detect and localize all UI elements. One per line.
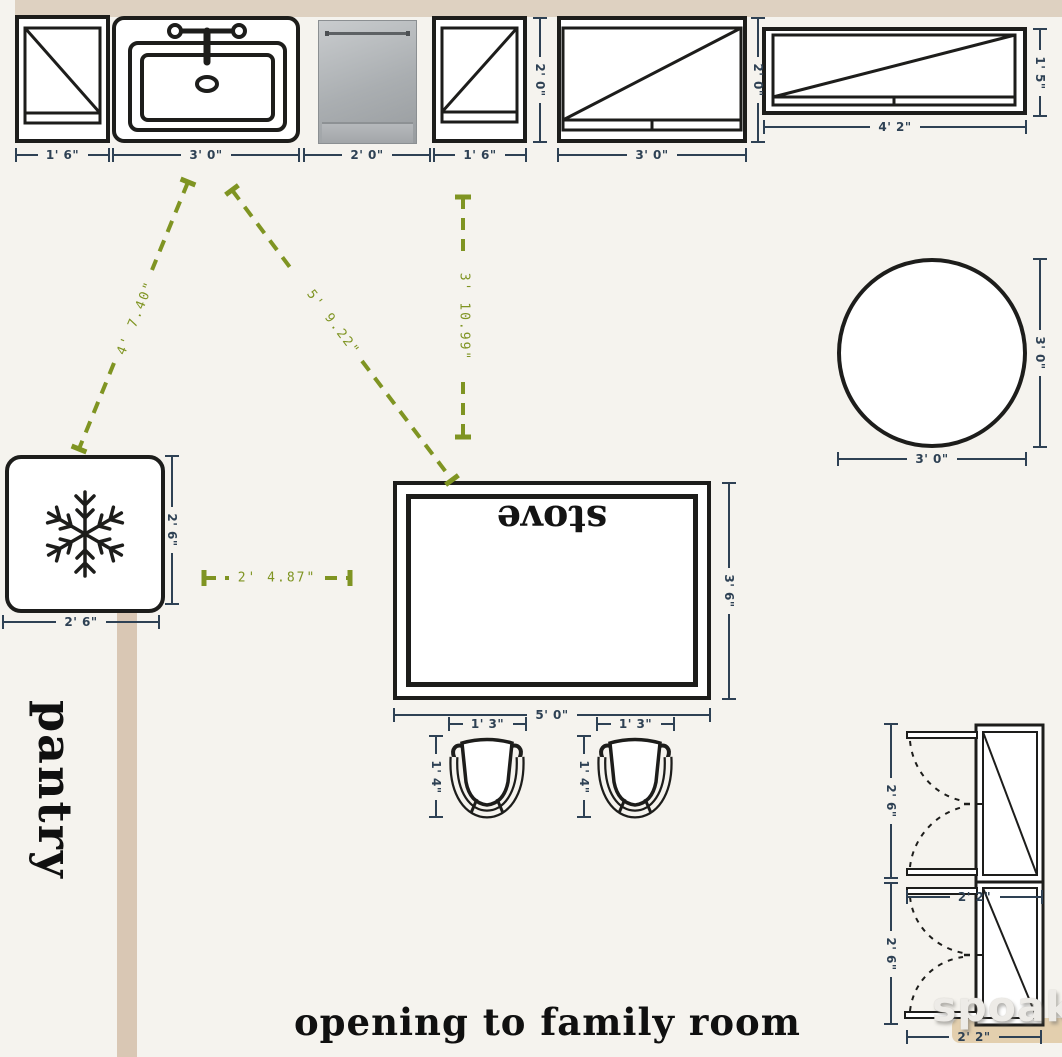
guide-label: 5' 9.22" bbox=[303, 287, 362, 359]
spoak-watermark: spoak. bbox=[932, 983, 1062, 1031]
snowflake-icon bbox=[36, 485, 134, 583]
stove-label: stove bbox=[397, 497, 707, 542]
guide-line-sink-to-stove bbox=[232, 190, 452, 480]
stool-right[interactable] bbox=[595, 733, 675, 821]
window-icon bbox=[762, 27, 1027, 115]
dim-label: 5' 0" bbox=[535, 709, 568, 721]
stool-left[interactable] bbox=[447, 733, 527, 821]
window-mid[interactable] bbox=[557, 16, 747, 143]
floorplan-canvas: stove bbox=[0, 0, 1062, 1057]
dim-cabinet-small-left-width: 1' 6" bbox=[15, 148, 110, 162]
cabinet-small-left[interactable] bbox=[15, 15, 110, 143]
dim-table-height: 3' 0" bbox=[1033, 258, 1047, 448]
window-right[interactable] bbox=[762, 27, 1027, 115]
opening-to-family-room-label[interactable]: opening to family room bbox=[294, 1000, 801, 1044]
dim-table-width: 3' 0" bbox=[837, 452, 1027, 466]
dim-window-right-width: 4' 2" bbox=[763, 120, 1027, 134]
guide-label: 3' 10.99" bbox=[457, 273, 472, 361]
pantry-label[interactable]: pantry bbox=[28, 700, 82, 880]
dim-stool-right-width: 1' 3" bbox=[596, 717, 675, 731]
dishwasher[interactable] bbox=[318, 20, 417, 144]
stool-icon bbox=[595, 733, 675, 821]
dim-label: 2' 6" bbox=[166, 513, 178, 546]
dim-label: 1' 6" bbox=[46, 149, 79, 161]
dim-label: 2' 6" bbox=[64, 616, 97, 628]
dishwasher-kickplate bbox=[322, 122, 413, 143]
dim-stool-right-height: 1' 4" bbox=[577, 735, 591, 818]
cabinet-icon bbox=[15, 15, 110, 143]
window-icon bbox=[557, 16, 747, 143]
dim-pantry-cabinet-upper-width: 2' 2" bbox=[906, 890, 1043, 904]
stool-icon bbox=[447, 733, 527, 821]
dim-label: 1' 3" bbox=[471, 718, 504, 730]
cabinet-small-right[interactable] bbox=[432, 16, 527, 143]
dim-window-right-height: 1' 5" bbox=[1033, 28, 1047, 117]
guide-label: 4' 7.40" bbox=[114, 279, 158, 357]
wall-top bbox=[15, 0, 1062, 17]
kitchen-sink[interactable] bbox=[112, 16, 300, 143]
dim-window-mid-width: 3' 0" bbox=[557, 148, 747, 162]
guide-line-fridge-to-sink bbox=[79, 182, 188, 449]
dim-pantry-cabinet-upper-height: 2' 6" bbox=[884, 723, 898, 879]
refrigerator[interactable] bbox=[5, 455, 165, 613]
dim-label: 1' 5" bbox=[1034, 56, 1046, 89]
dim-label: 1' 6" bbox=[463, 149, 496, 161]
dim-stove-height: 3' 6" bbox=[722, 482, 736, 700]
dim-label: 1' 3" bbox=[619, 718, 652, 730]
dim-label: 3' 0" bbox=[189, 149, 222, 161]
dim-label: 2' 0" bbox=[752, 63, 764, 96]
dim-pantry-cabinet-lower-height: 2' 6" bbox=[884, 882, 898, 1025]
dim-label: 2' 6" bbox=[885, 784, 897, 817]
dim-label: 1' 4" bbox=[578, 760, 590, 793]
sink-icon bbox=[112, 16, 300, 143]
dim-label: 2' 0" bbox=[350, 149, 383, 161]
dim-window-mid-height: 2' 0" bbox=[751, 17, 765, 143]
dim-label: 2' 2" bbox=[957, 1031, 990, 1043]
dim-label: 1' 4" bbox=[430, 760, 442, 793]
cabinet-icon bbox=[432, 16, 527, 143]
dim-label: 2' 2" bbox=[958, 891, 991, 903]
dim-label: 3' 0" bbox=[915, 453, 948, 465]
round-table[interactable] bbox=[837, 258, 1027, 448]
dim-sink-width: 3' 0" bbox=[112, 148, 300, 162]
dim-stool-left-width: 1' 3" bbox=[448, 717, 527, 731]
dim-label: 4' 2" bbox=[878, 121, 911, 133]
wall-pantry bbox=[117, 605, 137, 1057]
dim-dishwasher-width: 2' 0" bbox=[303, 148, 431, 162]
dim-fridge-width: 2' 6" bbox=[2, 615, 160, 629]
guide-label: 2' 4.87" bbox=[238, 571, 317, 586]
dim-cabinet-small-right-width: 1' 6" bbox=[433, 148, 527, 162]
dim-label: 3' 0" bbox=[635, 149, 668, 161]
dim-stool-left-height: 1' 4" bbox=[429, 735, 443, 818]
dim-label: 2' 6" bbox=[885, 937, 897, 970]
dim-fridge-height: 2' 6" bbox=[165, 455, 179, 605]
dim-label: 3' 0" bbox=[1034, 336, 1046, 369]
dim-label: 2' 0" bbox=[534, 63, 546, 96]
stove[interactable]: stove bbox=[393, 481, 711, 700]
dim-pantry-cabinet-lower-width: 2' 2" bbox=[906, 1030, 1042, 1044]
dim-label: 3' 6" bbox=[723, 574, 735, 607]
dim-cabinet-small-right-height: 2' 0" bbox=[533, 17, 547, 143]
dishwasher-handle-icon bbox=[326, 32, 409, 35]
